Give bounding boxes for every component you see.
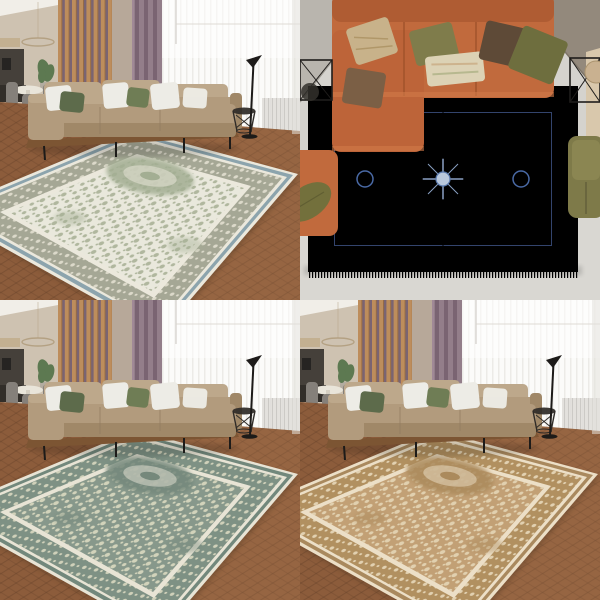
flatlay-photo [300, 0, 600, 300]
throw-pillow [150, 82, 181, 111]
lamp-base [242, 134, 258, 139]
throw-pillow [482, 387, 507, 409]
throw-pillow [59, 91, 85, 113]
side-rosette [513, 171, 529, 187]
lumbar-pillow [425, 51, 486, 87]
room-photo [300, 300, 600, 600]
accent-chair [568, 136, 600, 218]
photo-living-room-sage-green-rug[interactable] [0, 300, 300, 600]
sectional-sofa [26, 80, 242, 160]
rug-collage [0, 0, 600, 600]
rug-fringe [308, 272, 578, 278]
photo-flatlay-blue-medallion-rug[interactable] [300, 0, 600, 300]
ottoman [300, 150, 338, 236]
photo-living-room-sage-ivory-rug[interactable] [0, 0, 300, 300]
throw-pillow [182, 87, 207, 109]
throw-pillow [341, 67, 386, 109]
throw-pillow [59, 391, 85, 413]
throw-pillow [359, 391, 385, 413]
sectional-sofa [326, 380, 542, 460]
room-photo [0, 300, 300, 600]
sheer-curtain-edge [592, 300, 600, 434]
throw-pillow [450, 382, 481, 411]
sheer-curtain-edge [292, 300, 300, 434]
photo-living-room-camel-tan-rug[interactable] [300, 300, 600, 600]
throw-pillow [150, 382, 181, 411]
side-rosette [357, 171, 373, 187]
throw-pillow [182, 387, 207, 409]
sectional-sofa [26, 380, 242, 460]
throw-pillow [402, 382, 430, 409]
lamp-base [542, 434, 558, 439]
sheer-curtain-edge [292, 0, 300, 134]
throw-pillow [102, 382, 130, 409]
throw-pillow [126, 387, 150, 409]
throw-pillow [102, 82, 130, 109]
throw-pillow [126, 87, 150, 109]
sofa-backrest [332, 0, 554, 22]
throw-pillow [426, 387, 450, 409]
room-photo [0, 0, 300, 300]
lamp-base [242, 434, 258, 439]
